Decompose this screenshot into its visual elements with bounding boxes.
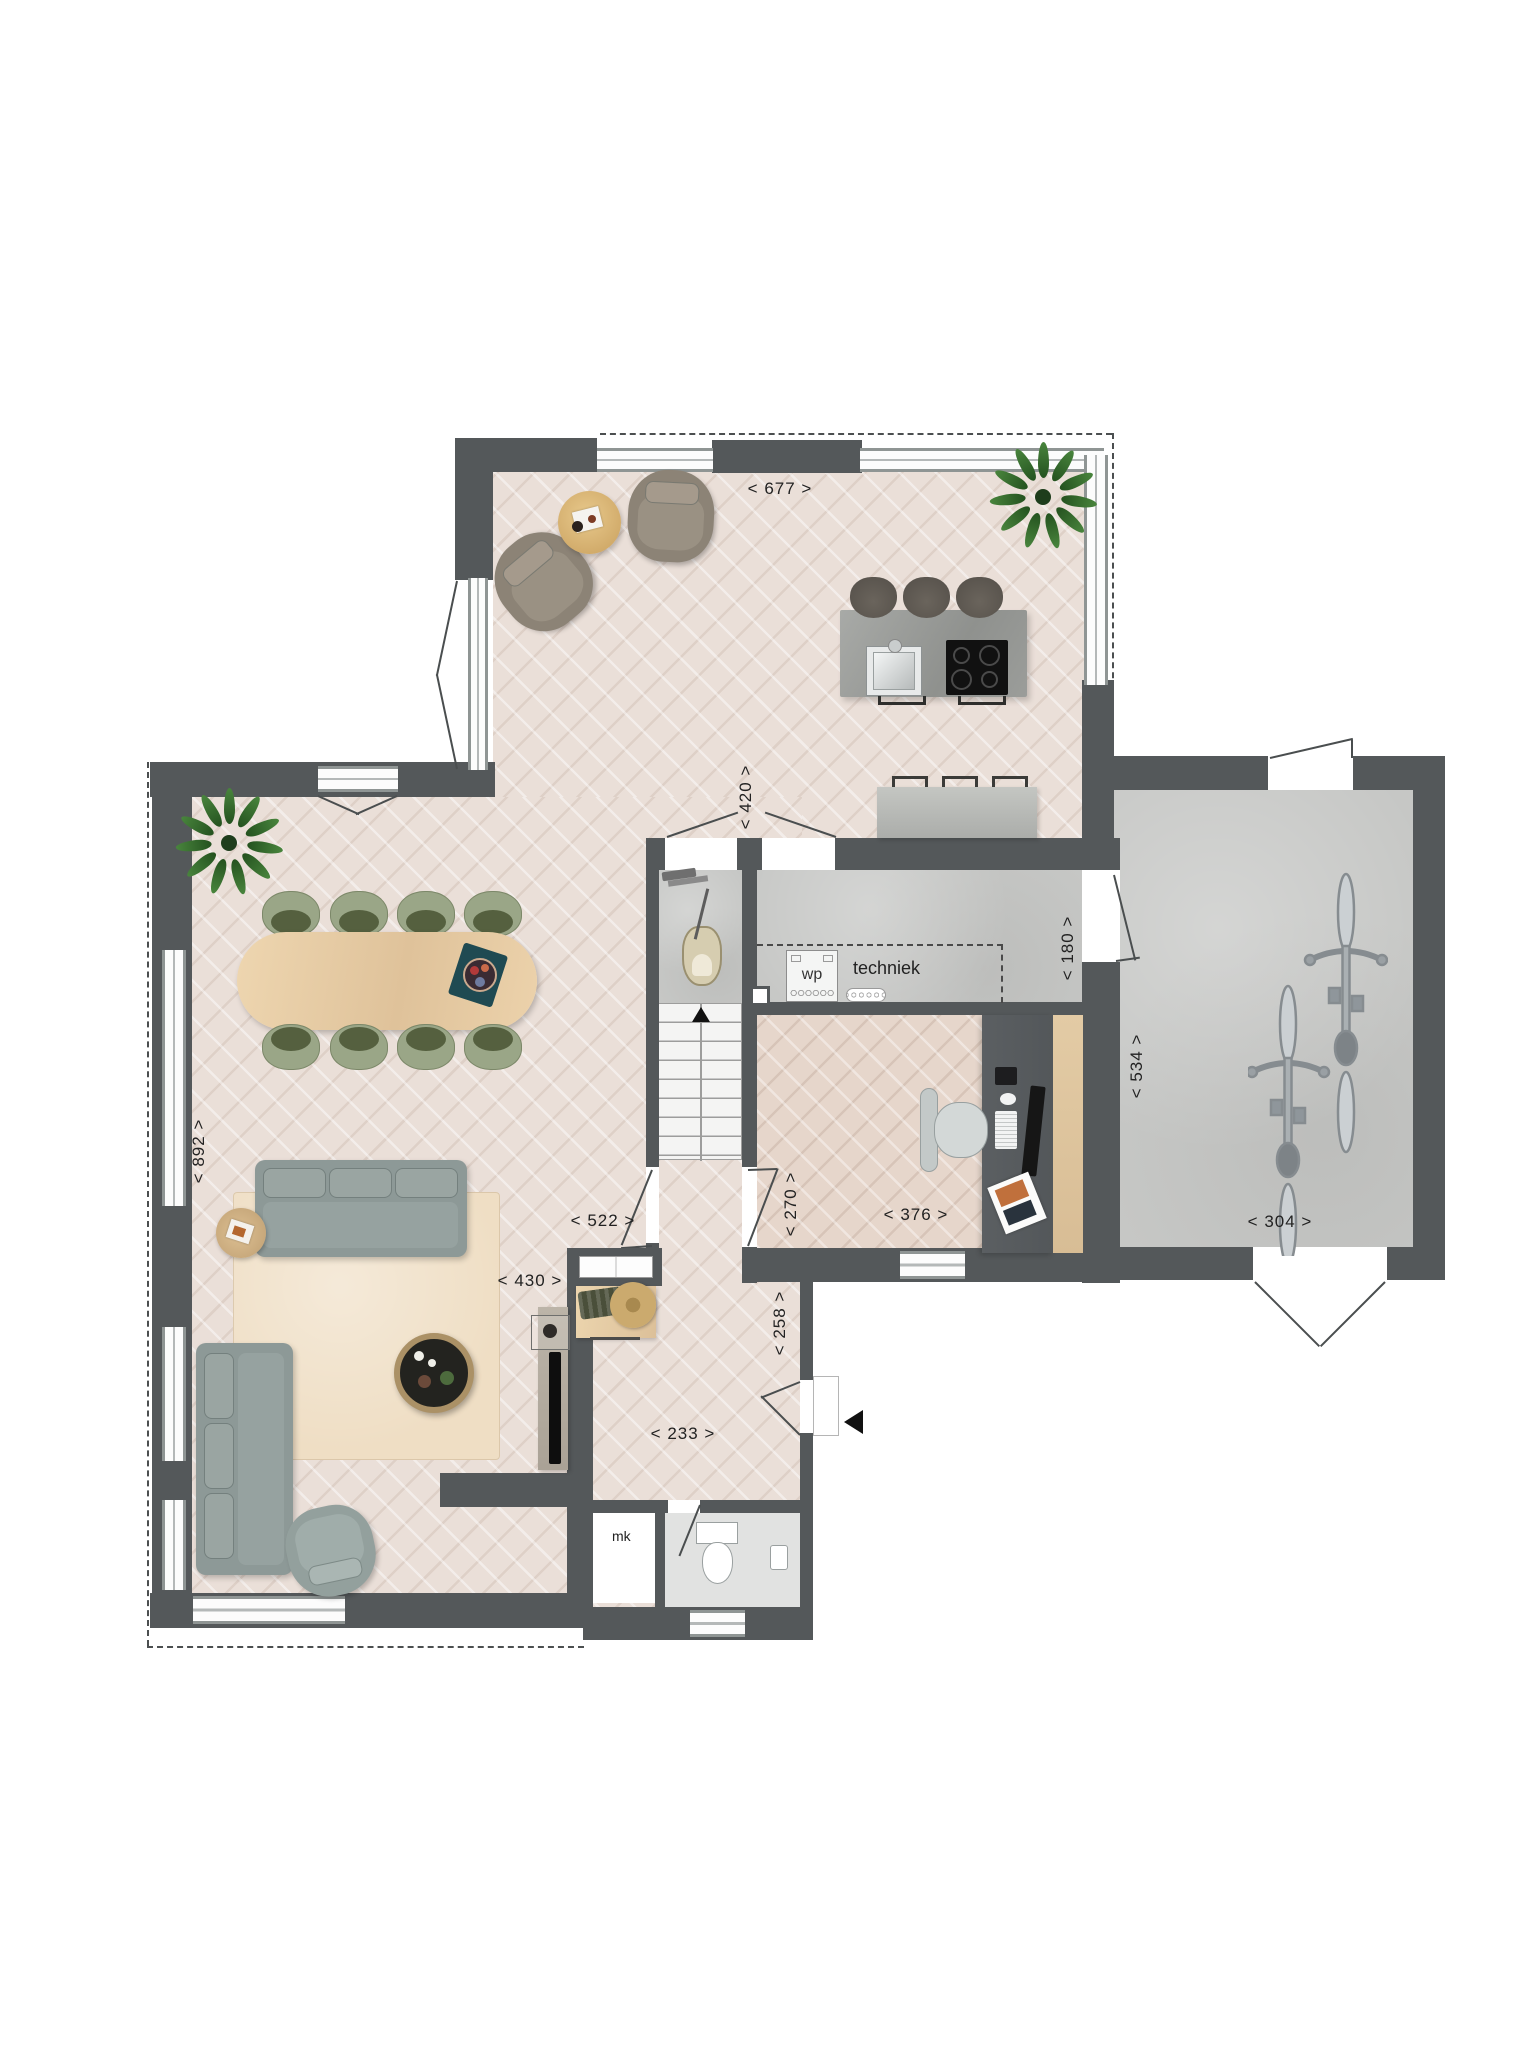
sofa-three-seat	[255, 1160, 467, 1257]
dimension-label: < 376 >	[884, 1205, 949, 1225]
window	[597, 448, 713, 472]
window	[318, 766, 398, 792]
dimension-label: < 258 >	[770, 1291, 790, 1356]
door-opening	[762, 838, 835, 870]
stove-icon	[543, 1324, 557, 1338]
door-opening	[800, 1380, 813, 1433]
armchair	[626, 468, 717, 564]
dining-table	[237, 932, 537, 1030]
dimension-label: < 677 >	[748, 479, 813, 499]
door-opening	[665, 838, 737, 870]
wall-segment	[1082, 680, 1114, 840]
door-leaf	[1320, 1281, 1386, 1347]
hat	[610, 1282, 656, 1328]
door-leaf	[436, 674, 458, 769]
wall-segment	[455, 438, 493, 580]
entry-wardrobe	[567, 1248, 662, 1286]
toilet-bowl	[702, 1542, 733, 1584]
side-table	[216, 1208, 266, 1258]
wall-segment	[655, 1507, 665, 1607]
dimension-label: < 892 >	[189, 1119, 209, 1184]
wall-segment	[712, 440, 862, 473]
dimension-label: < 180 >	[1058, 916, 1078, 981]
wall-segment	[1413, 756, 1445, 1280]
dining-chair	[330, 891, 388, 937]
plant-center	[221, 835, 237, 851]
bar-stool	[956, 577, 1003, 618]
bar-stool	[850, 577, 897, 618]
mouse	[1000, 1093, 1016, 1105]
plant-center	[1035, 489, 1051, 505]
dimension-label: < 304 >	[1248, 1212, 1313, 1232]
window	[162, 950, 186, 1206]
toilet	[696, 1522, 738, 1544]
dimension-label: < 534 >	[1127, 1034, 1147, 1099]
door-leaf	[1254, 1281, 1320, 1347]
fireplace-glass	[531, 1315, 570, 1350]
plant-leaf	[1038, 442, 1049, 478]
stool-outline	[892, 776, 928, 787]
meter-cupboard-label: mk	[612, 1528, 631, 1544]
wall-segment	[440, 1473, 583, 1507]
overhang-dashed-line-left	[147, 762, 149, 1646]
floorplan-canvas: wp	[0, 0, 1536, 2048]
plant	[1006, 460, 1076, 530]
door-opening	[742, 1167, 757, 1247]
overhang-dashed-line-bottom	[147, 1646, 584, 1648]
kitchen-island	[840, 610, 1027, 697]
vacuum-cleaner	[682, 926, 722, 986]
staircase	[658, 1003, 742, 1160]
desk-wood-panel	[1053, 1015, 1083, 1253]
heat-pump-unit: wp	[786, 950, 838, 1002]
wall-segment	[755, 1002, 1085, 1015]
stairs-up-arrow-icon	[692, 1007, 710, 1022]
island-handle	[878, 696, 926, 705]
door-opening	[1268, 756, 1353, 790]
window	[162, 1500, 186, 1590]
dimension-label: < 270 >	[781, 1172, 801, 1237]
fireplace-fire-slot	[549, 1352, 561, 1464]
dimension-label: < 430 >	[498, 1271, 563, 1291]
bicycles	[1248, 866, 1388, 1256]
overhang-dashed-line-top	[600, 433, 1112, 435]
plant	[192, 806, 266, 880]
dining-chair	[262, 891, 320, 937]
plant-leaf	[224, 788, 235, 824]
dining-chair	[397, 1024, 455, 1070]
dimension-label: < 233 >	[651, 1424, 716, 1444]
faucet-icon	[888, 639, 902, 653]
bar-stool	[903, 577, 950, 618]
door-leaf	[1351, 740, 1353, 758]
dimension-label: < 420 >	[736, 765, 756, 830]
window	[468, 578, 488, 770]
window	[162, 1327, 186, 1461]
stairs-center-line	[700, 1004, 702, 1161]
entrance-step	[813, 1376, 839, 1436]
appliance-vent	[846, 988, 886, 1002]
sideboard	[877, 787, 1037, 838]
door-leaf	[436, 581, 458, 676]
wall-segment	[800, 1280, 813, 1640]
floor-meter-cupboard	[593, 1513, 655, 1603]
entry-bench	[576, 1286, 656, 1338]
dining-chair	[464, 891, 522, 937]
wall-segment	[1113, 756, 1415, 790]
cooktop	[946, 640, 1008, 695]
heat-pump-label: wp	[787, 966, 837, 984]
dining-chair	[464, 1024, 522, 1070]
window	[690, 1610, 745, 1637]
washbasin	[770, 1545, 788, 1570]
coffee-table	[394, 1333, 474, 1413]
keyboard	[995, 1111, 1017, 1149]
stool-outline	[942, 776, 978, 787]
dining-chair	[262, 1024, 320, 1070]
dining-chair	[330, 1024, 388, 1070]
office-chair	[920, 1082, 990, 1178]
pouf-table	[558, 491, 621, 554]
bench-legs	[590, 1337, 640, 1340]
window	[1084, 455, 1108, 685]
entrance-arrow-icon	[844, 1410, 863, 1434]
dimension-label: < 522 >	[571, 1211, 636, 1231]
shaft-box	[750, 986, 770, 1006]
stool-outline	[992, 776, 1028, 787]
window	[900, 1251, 965, 1279]
techniek-label: techniek	[853, 958, 920, 979]
window	[193, 1596, 345, 1624]
sofa-two-seat	[196, 1343, 293, 1575]
sink	[866, 646, 922, 696]
fruit-plate	[463, 958, 497, 992]
dining-chair	[397, 891, 455, 937]
island-handle	[958, 696, 1006, 705]
phone	[995, 1067, 1017, 1085]
